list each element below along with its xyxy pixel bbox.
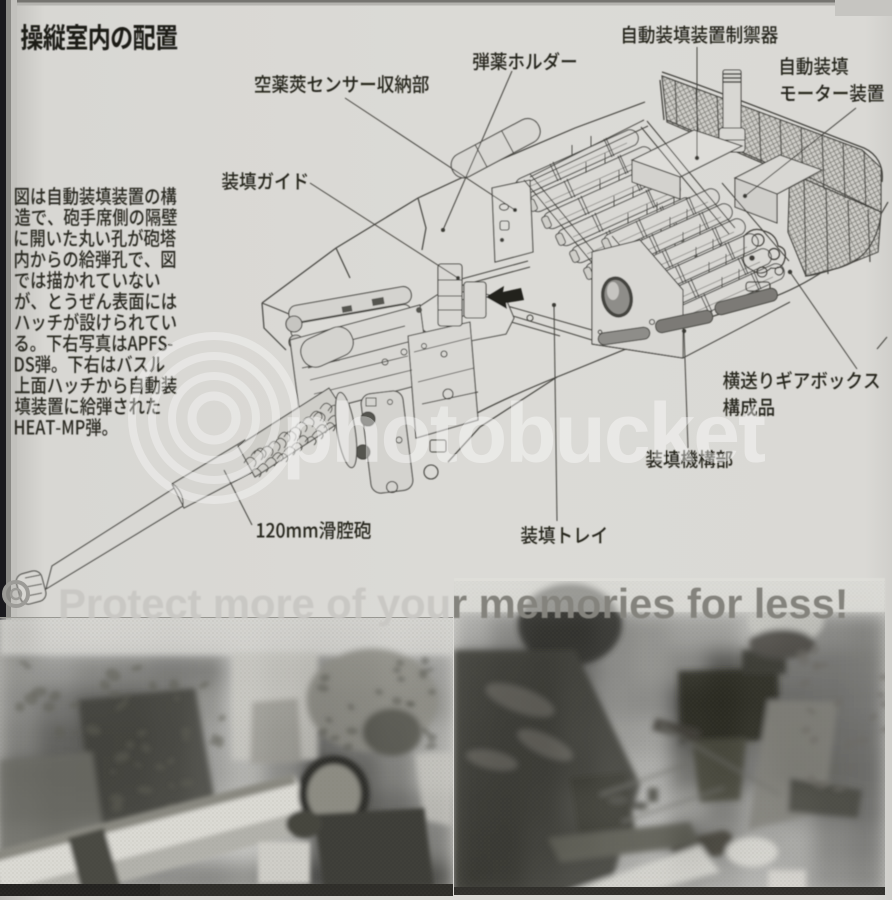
svg-text:photobucket: photobucket: [282, 386, 765, 480]
